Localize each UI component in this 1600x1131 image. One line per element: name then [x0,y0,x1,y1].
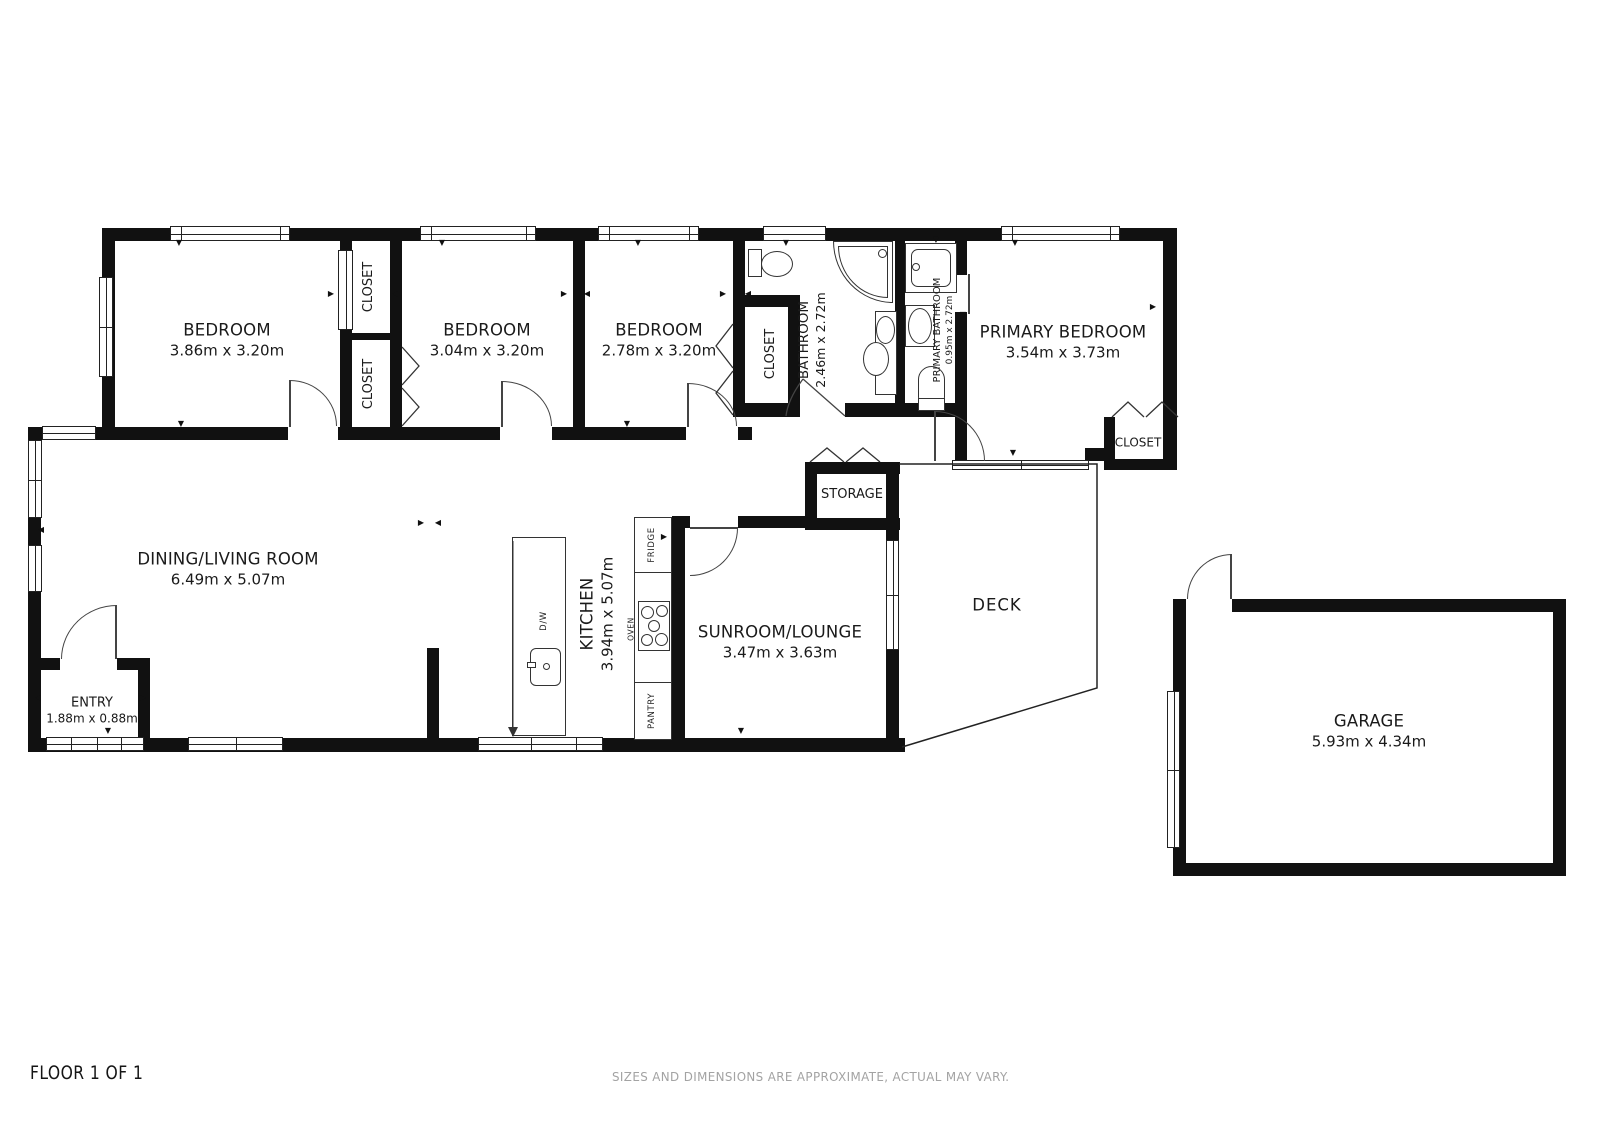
wall [573,241,585,427]
wall [1104,459,1177,470]
door-opening [1186,599,1232,612]
marker-triangle-down: ▼ [105,727,111,735]
counter-divider [634,682,672,683]
window [1001,226,1120,241]
dishwasher-label: D/W [539,611,549,631]
closet-label: CLOSET [763,329,779,380]
door-leaf [501,381,503,427]
room-name: GARAGE [1312,711,1426,732]
wall [1553,599,1566,876]
room-name: KITCHEN [577,557,598,671]
door-arc [1187,554,1232,599]
shower-drain-icon [878,249,887,258]
marker-triangle-left: ◀ [392,290,398,298]
room-name: BATHROOM [796,292,813,387]
door-leaf [968,274,970,314]
burner-icon [648,620,660,632]
room-label-deck: DECK [972,596,1021,617]
window [188,737,283,751]
door-opening [60,658,117,670]
room-name: PRIMARY BEDROOM [980,322,1147,343]
wall [28,738,905,752]
door-leaf [690,527,738,529]
window [28,545,42,592]
door-arc [935,411,985,461]
room-name: DECK [972,596,1021,617]
wall [1173,863,1566,876]
door-arc [61,605,117,659]
toilet-icon [863,342,889,376]
counter-divider [634,572,672,573]
window [886,540,899,650]
window [28,440,42,518]
room-name: BEDROOM [430,320,544,341]
room-label-primary-bathroom: PRIMARY BATHROOM 0.95m x 2.72m [932,278,956,383]
room-label-bedroom-3: BEDROOM 2.78m x 3.20m [602,320,716,359]
room-dims: 3.47m x 3.63m [698,643,862,662]
window [46,737,144,751]
sliding-door [338,250,353,330]
door-opening [500,427,552,440]
wall [733,241,745,417]
bifold-doors [810,448,880,462]
room-dims: 6.49m x 5.07m [137,570,318,589]
marker-triangle-right: ▶ [561,290,567,298]
door-leaf [934,411,936,461]
marker-triangle-right: ▶ [140,694,146,702]
door-leaf [115,605,117,659]
room-label-storage: STORAGE [821,487,883,503]
sink-icon [908,308,932,344]
wall [340,333,402,340]
room-dims: 3.86m x 3.20m [170,341,284,360]
window [42,426,96,440]
room-name: BEDROOM [602,320,716,341]
kitchen-island [512,537,566,736]
bifold-doors [402,347,419,426]
window [420,226,536,241]
room-name: STORAGE [821,487,883,503]
shower-drain-icon [912,263,920,271]
marker-triangle-down: ▼ [1010,449,1016,457]
marker-triangle-down: ▼ [178,420,184,428]
marker-triangle-down: ▼ [439,239,445,247]
floor-indicator: FLOOR 1 OF 1 [30,1062,143,1084]
wall [427,648,439,752]
room-label-dining-living: DINING/LIVING ROOM 6.49m x 5.07m [137,549,318,588]
marker-triangle-left: ◀ [584,290,590,298]
burner-icon [641,634,653,646]
marker-triangle-left: ◀ [674,587,680,595]
marker-triangle-right: ▶ [661,533,667,541]
room-name: PRIMARY BATHROOM [932,278,945,383]
window [763,226,826,241]
room-name: SUNROOM/LOUNGE [698,622,862,643]
room-label-bathroom: BATHROOM 2.46m x 2.72m [796,292,829,387]
door-arc [690,528,738,576]
window [598,226,699,241]
wall [745,295,800,307]
window [99,277,113,377]
marker-triangle-left: ◀ [35,694,41,702]
closet-label: CLOSET [361,359,377,410]
closet-label: CLOSET [1115,436,1162,451]
room-dims: 5.93m x 4.34m [1312,732,1426,751]
marker-triangle-down: ▼ [783,239,789,247]
wall [28,427,752,440]
room-dims: 0.95m x 2.72m [945,278,956,383]
wall [672,516,685,752]
door-leaf [289,380,291,427]
window [478,737,603,751]
sink-icon [876,316,895,344]
faucet-icon [543,663,550,670]
door-opening [800,403,845,417]
disclaimer-text: SIZES AND DIMENSIONS ARE APPROXIMATE, AC… [612,1069,1009,1084]
room-label-sunroom: SUNROOM/LOUNGE 3.47m x 3.63m [698,622,862,661]
window [170,226,290,241]
marker-triangle-right: ▶ [720,290,726,298]
marker-triangle-down: ▼ [176,239,182,247]
burner-icon [641,606,654,619]
toilet-icon [761,251,793,277]
room-dims: 2.46m x 2.72m [813,292,829,387]
room-label-bedroom-1: BEDROOM 3.86m x 3.20m [170,320,284,359]
marker-triangle-right: ▶ [328,290,334,298]
closet-label: CLOSET [361,262,377,313]
marker-triangle-down: ▼ [1012,239,1018,247]
marker-triangle-down: ▼ [933,236,939,244]
toilet-icon [748,249,762,277]
pantry-label: PANTRY [647,693,657,729]
burner-icon [656,605,668,617]
oven-label: OVEN [627,617,636,641]
marker-triangle-left: ◀ [435,519,441,527]
marker-triangle-up: ▲ [960,339,966,347]
burner-icon [655,633,668,646]
marker-triangle-down: ▼ [960,311,966,319]
faucet-handle-icon [527,662,536,668]
room-name: ENTRY [46,695,138,711]
door-leaf [1230,554,1232,599]
door-leaf [687,383,689,427]
room-label-primary-bedroom: PRIMARY BEDROOM 3.54m x 3.73m [980,322,1147,361]
marker-triangle-down: ▼ [624,420,630,428]
room-label-entry: ENTRY 1.88m x 0.88m [46,695,138,726]
wall [1163,228,1177,470]
room-label-bedroom-2: BEDROOM 3.04m x 3.20m [430,320,544,359]
door-opening [288,427,338,440]
room-dims: 2.78m x 3.20m [602,341,716,360]
sliding-door [952,460,1089,470]
room-name: BEDROOM [170,320,284,341]
room-dims: 1.88m x 0.88m [46,712,138,727]
room-name: DINING/LIVING ROOM [137,549,318,570]
room-label-kitchen: KITCHEN 3.94m x 5.07m [577,557,616,671]
window [1167,691,1180,848]
room-dims: 3.94m x 5.07m [598,557,617,671]
floorplan: BEDROOM 3.86m x 3.20m BEDROOM 3.04m x 3.… [0,0,1600,1131]
room-dims: 3.04m x 3.20m [430,341,544,360]
marker-triangle-left: ◀ [745,290,751,298]
door-arc [502,381,552,426]
door-arc [290,380,337,426]
marker-triangle-right: ▶ [1150,303,1156,311]
fridge-label: FRIDGE [647,527,657,562]
marker-triangle-down: ▼ [635,239,641,247]
door-arc [688,383,737,426]
marker-triangle-right: ▶ [418,519,424,527]
marker-triangle-left: ◀ [38,526,44,534]
marker-triangle-down: ▼ [738,727,744,735]
room-dims: 3.54m x 3.73m [980,343,1147,362]
toilet-tank-icon [918,398,945,411]
room-label-garage: GARAGE 5.93m x 4.34m [1312,711,1426,750]
door-opening [686,427,738,440]
